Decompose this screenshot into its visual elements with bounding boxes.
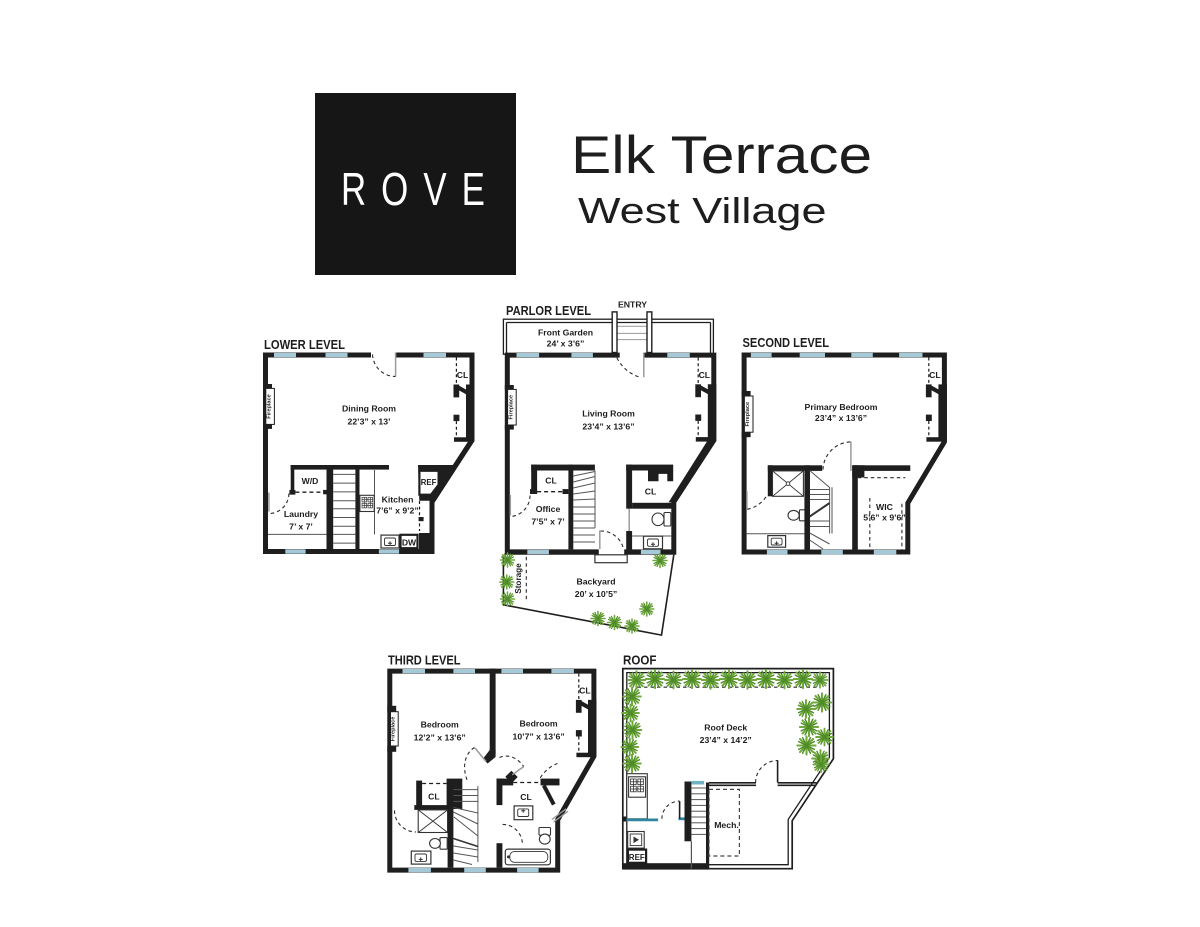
svg-text:10’7” x 13’6”: 10’7” x 13’6” [513, 732, 565, 742]
svg-text:CL: CL [929, 370, 940, 380]
svg-text:ROOF: ROOF [623, 653, 657, 668]
svg-text:WIC: WIC [876, 502, 894, 512]
svg-text:DW: DW [402, 538, 417, 548]
svg-text:CL: CL [645, 486, 656, 496]
svg-text:23’4” x 13’6”: 23’4” x 13’6” [582, 422, 634, 432]
svg-text:REF: REF [629, 853, 645, 862]
svg-text:CL: CL [520, 792, 531, 802]
svg-text:CL: CL [545, 476, 556, 486]
svg-text:Bedroom: Bedroom [421, 720, 459, 730]
svg-text:Fireplace: Fireplace [508, 395, 514, 420]
svg-text:24’ x 3’6”: 24’ x 3’6” [547, 339, 585, 349]
svg-text:5’6” x 9’6”: 5’6” x 9’6” [863, 512, 906, 522]
svg-text:W/D: W/D [302, 476, 319, 486]
svg-text:7’5” x 7’: 7’5” x 7’ [531, 517, 564, 527]
svg-text:Front Garden: Front Garden [538, 328, 593, 338]
svg-text:Office: Office [536, 504, 561, 514]
svg-text:PARLOR LEVEL: PARLOR LEVEL [506, 303, 591, 318]
svg-text:12’2” x 13’6”: 12’2” x 13’6” [414, 733, 466, 743]
svg-text:REF: REF [421, 478, 437, 487]
svg-text:Storage: Storage [514, 563, 523, 594]
svg-text:Dining Room: Dining Room [342, 404, 396, 414]
svg-text:CL: CL [579, 686, 590, 696]
svg-text:Fireplace: Fireplace [391, 717, 397, 742]
svg-text:7’ x 7’: 7’ x 7’ [289, 522, 313, 532]
svg-text:Backyard: Backyard [576, 577, 615, 587]
svg-text:LOWER LEVEL: LOWER LEVEL [264, 337, 345, 352]
svg-text:Kitchen: Kitchen [382, 495, 414, 505]
svg-text:CL: CL [428, 792, 439, 802]
svg-text:Laundry: Laundry [284, 509, 318, 519]
svg-text:23’4” x 14’2”: 23’4” x 14’2” [700, 735, 752, 745]
svg-text:Fireplace: Fireplace [745, 402, 751, 427]
svg-text:CL: CL [457, 370, 468, 380]
svg-text:7’6” x 9’2”: 7’6” x 9’2” [376, 506, 419, 516]
svg-text:CL: CL [699, 370, 710, 380]
svg-text:Roof Deck: Roof Deck [704, 723, 747, 733]
svg-text:22’3” x 13’: 22’3” x 13’ [348, 417, 391, 427]
svg-text:20’ x 10’5”: 20’ x 10’5” [575, 589, 618, 599]
svg-text:Primary Bedroom: Primary Bedroom [805, 402, 878, 412]
svg-text:ENTRY: ENTRY [618, 300, 647, 310]
svg-text:Living Room: Living Room [582, 409, 635, 419]
svg-text:Mech.: Mech. [714, 820, 739, 830]
svg-text:SECOND LEVEL: SECOND LEVEL [743, 335, 830, 350]
svg-text:Fireplace: Fireplace [267, 394, 273, 419]
svg-text:THIRD LEVEL: THIRD LEVEL [388, 653, 461, 668]
svg-text:Bedroom: Bedroom [520, 719, 558, 729]
svg-text:23’4” x 13’6”: 23’4” x 13’6” [815, 413, 867, 423]
